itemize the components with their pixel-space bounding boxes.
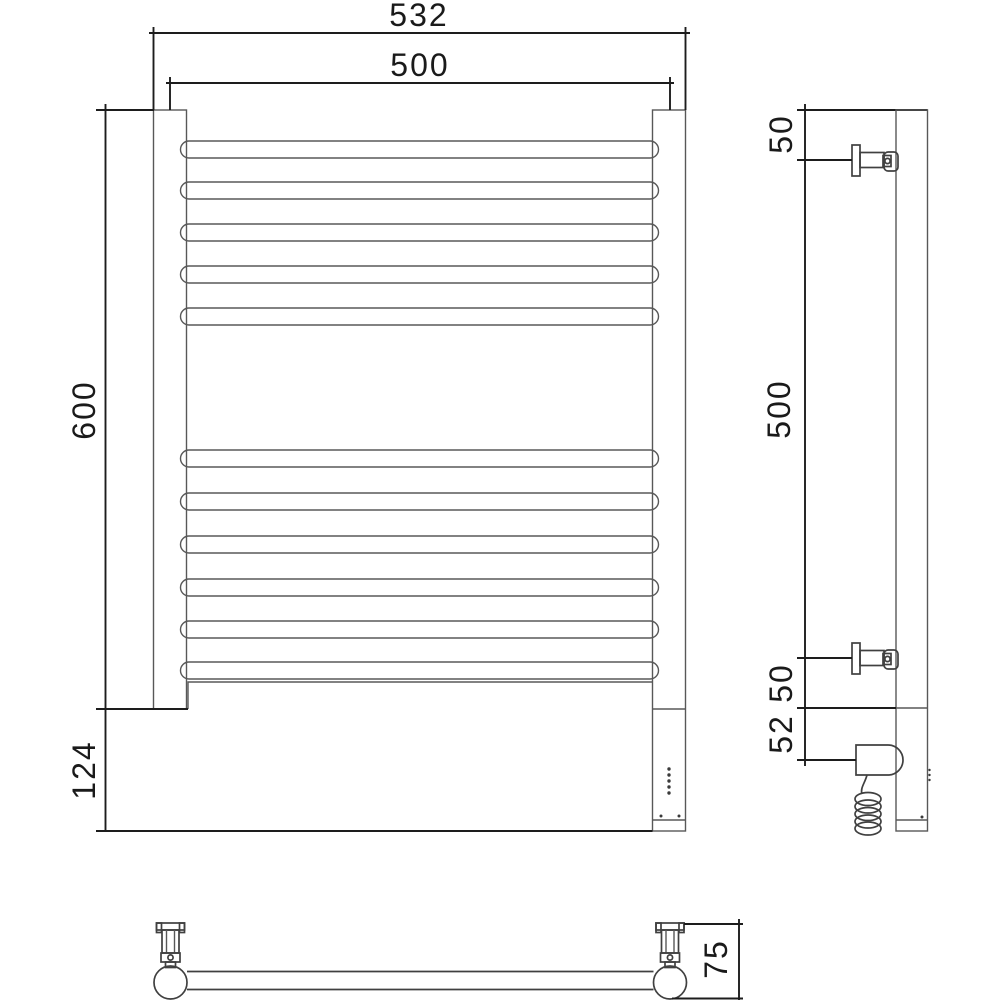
- towel-bar: [181, 141, 659, 158]
- led-edge-dot: [928, 769, 930, 771]
- side-panel: [896, 110, 928, 831]
- collar-screw: [168, 955, 173, 960]
- dim-element-offset-label: 52: [763, 714, 799, 754]
- led-indicator-dots: [667, 767, 670, 794]
- drawing-canvas: 532 500 600 124: [0, 0, 1000, 1000]
- coil-loop: [855, 800, 881, 813]
- bracket-screw: [885, 158, 890, 163]
- towel-bar: [181, 308, 659, 325]
- towel-bar: [181, 493, 659, 510]
- towel-bar: [181, 536, 659, 553]
- towel-bar: [181, 182, 659, 199]
- led-dot: [667, 785, 670, 788]
- bracket-screw: [885, 656, 890, 661]
- side-view: [797, 110, 931, 835]
- screw-dot: [678, 815, 681, 818]
- led-edge-dot: [928, 779, 930, 781]
- mounting-ball-left: [154, 966, 187, 999]
- wall-bracket-lower: [852, 643, 898, 674]
- led-dot: [667, 791, 670, 794]
- led-dot: [667, 773, 670, 776]
- power-cord: [862, 775, 867, 794]
- side-dimensions: 50 500 50 52: [761, 104, 896, 766]
- screw-dot: [660, 815, 663, 818]
- bottom-bracket-left: [154, 923, 187, 999]
- bracket-pin: [860, 153, 884, 168]
- dim-top-offset-label: 50: [763, 114, 799, 154]
- bottom-bracket-right: [654, 923, 687, 999]
- towel-bar: [181, 579, 659, 596]
- towel-bars-bottom-group: [181, 450, 659, 679]
- towel-bars-top-group: [181, 141, 659, 325]
- towel-bar: [181, 662, 659, 679]
- led-edge-dot: [928, 774, 930, 776]
- dim-rail-height-label: 600: [66, 380, 102, 439]
- dim-bottom-offset-label: 50: [763, 663, 799, 703]
- left-rail: [154, 110, 187, 709]
- flange-tab: [157, 923, 162, 933]
- towel-rail-technical-drawing: 532 500 600 124: [0, 0, 1000, 1000]
- led-dot: [667, 767, 670, 770]
- wall-bracket-upper: [852, 145, 898, 176]
- front-view: [106, 110, 686, 831]
- dim-overall-width-label: 532: [389, 0, 448, 33]
- power-cord-coil: [855, 793, 881, 836]
- bracket-flange: [852, 643, 860, 674]
- screw-dot: [921, 816, 924, 819]
- dim-housing-height-label: 124: [66, 740, 102, 799]
- coil-loop: [855, 793, 881, 806]
- front-dimensions: 532 500 600 124: [66, 0, 690, 831]
- led-dot: [667, 779, 670, 782]
- bracket-body: [662, 930, 679, 953]
- bracket-pin: [860, 651, 884, 666]
- mounting-ball-right: [654, 966, 687, 999]
- right-rail-column: [653, 110, 686, 831]
- bracket-body: [162, 930, 179, 953]
- bottom-view: [154, 923, 687, 999]
- towel-bar: [181, 266, 659, 283]
- towel-bar: [181, 621, 659, 638]
- towel-bar: [181, 450, 659, 467]
- bracket-flange: [852, 145, 860, 176]
- collar-screw: [667, 955, 672, 960]
- dim-tube-span-label: 500: [390, 47, 449, 83]
- dim-wall-depth-label: 75: [698, 939, 734, 979]
- towel-bar: [181, 224, 659, 241]
- bottom-dimensions: 75: [672, 919, 743, 1000]
- housing-top-edge: [188, 682, 653, 709]
- flange-tab: [679, 923, 684, 933]
- flange-tab: [656, 923, 661, 933]
- flange-tab: [180, 923, 185, 933]
- coil-loop: [855, 808, 881, 821]
- dim-bracket-spacing-label: 500: [761, 379, 797, 438]
